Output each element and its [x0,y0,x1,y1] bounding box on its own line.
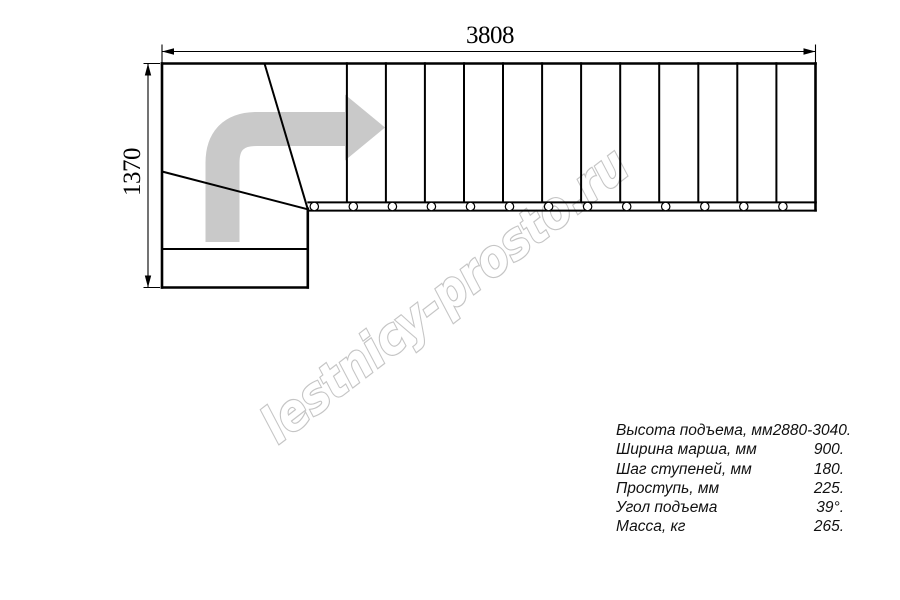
spec-label: Масса, кг [616,517,685,536]
direction-arrow-head [345,95,385,161]
spec-value: 265. [814,517,844,536]
support-bolt [310,202,318,210]
dim-arrow-top-right [804,48,816,54]
support-bolt [505,202,513,210]
spec-value: 180. [814,460,844,479]
support-bolt [623,202,631,210]
support-bolt [662,202,670,210]
support-bolt [388,202,396,210]
spec-value: 39°. [816,498,844,517]
spec-label: Шаг ступеней, мм [616,460,752,479]
spec-row-flight-width: Ширина марша, мм 900. [616,440,844,459]
dim-arrow-left-bottom [145,276,151,288]
spec-label: Ширина марша, мм [616,440,757,459]
support-bolt [466,202,474,210]
direction-arrow-band [223,129,346,242]
spec-label: Высота подъема, мм [616,421,773,440]
dim-value-total-length: 3808 [440,25,540,47]
bolt-circles [310,202,787,210]
support-bolt [701,202,709,210]
dim-arrow-top-left [162,48,174,54]
dim-value-total-width: 1370 [120,122,146,222]
spec-row-tread-depth: Проступь, мм 225. [616,479,844,498]
support-bolt [740,202,748,210]
support-bolt [427,202,435,210]
spec-value: 2880-3040. [773,421,851,440]
spec-value: 900. [814,440,844,459]
spec-row-step-rise: Шаг ступеней, мм 180. [616,460,844,479]
support-bolt [779,202,787,210]
spec-row-height: Высота подъема, мм 2880-3040. [616,421,844,440]
spec-row-angle: Угол подъема 39°. [616,498,844,517]
support-bolt [544,202,552,210]
specs-table: Высота подъема, мм 2880-3040. Ширина мар… [616,421,844,537]
spec-label: Угол подъема [616,498,717,517]
dim-arrow-left-top [145,64,151,76]
stair-drawing-page: lestnicy-prosto.ru [0,0,900,600]
spec-row-mass: Масса, кг 265. [616,517,844,536]
support-bolt [349,202,357,210]
support-bolt [583,202,591,210]
direction-arrow [223,95,386,243]
spec-label: Проступь, мм [616,479,719,498]
spec-value: 225. [814,479,844,498]
